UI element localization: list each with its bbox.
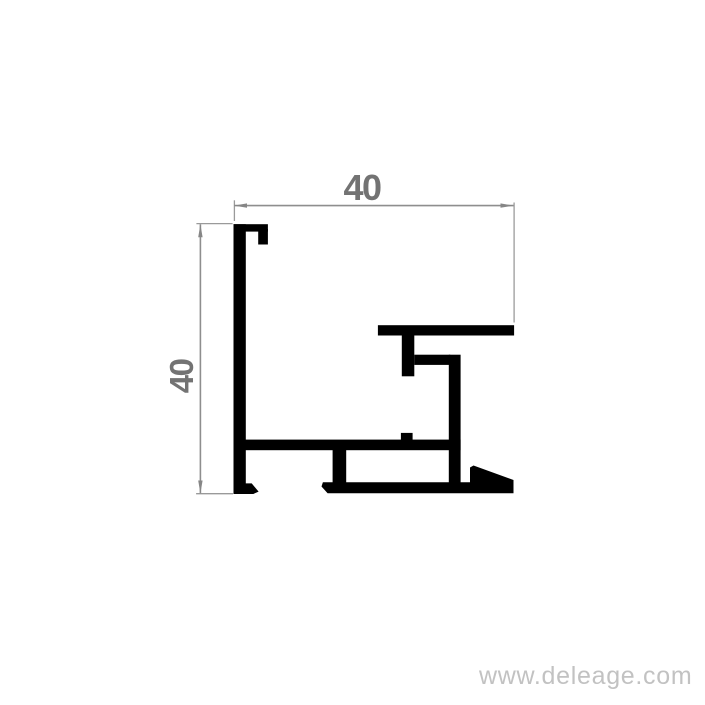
- svg-text:www.deleage.com: www.deleage.com: [478, 662, 692, 690]
- svg-text:40: 40: [163, 359, 200, 393]
- svg-text:40: 40: [343, 167, 381, 208]
